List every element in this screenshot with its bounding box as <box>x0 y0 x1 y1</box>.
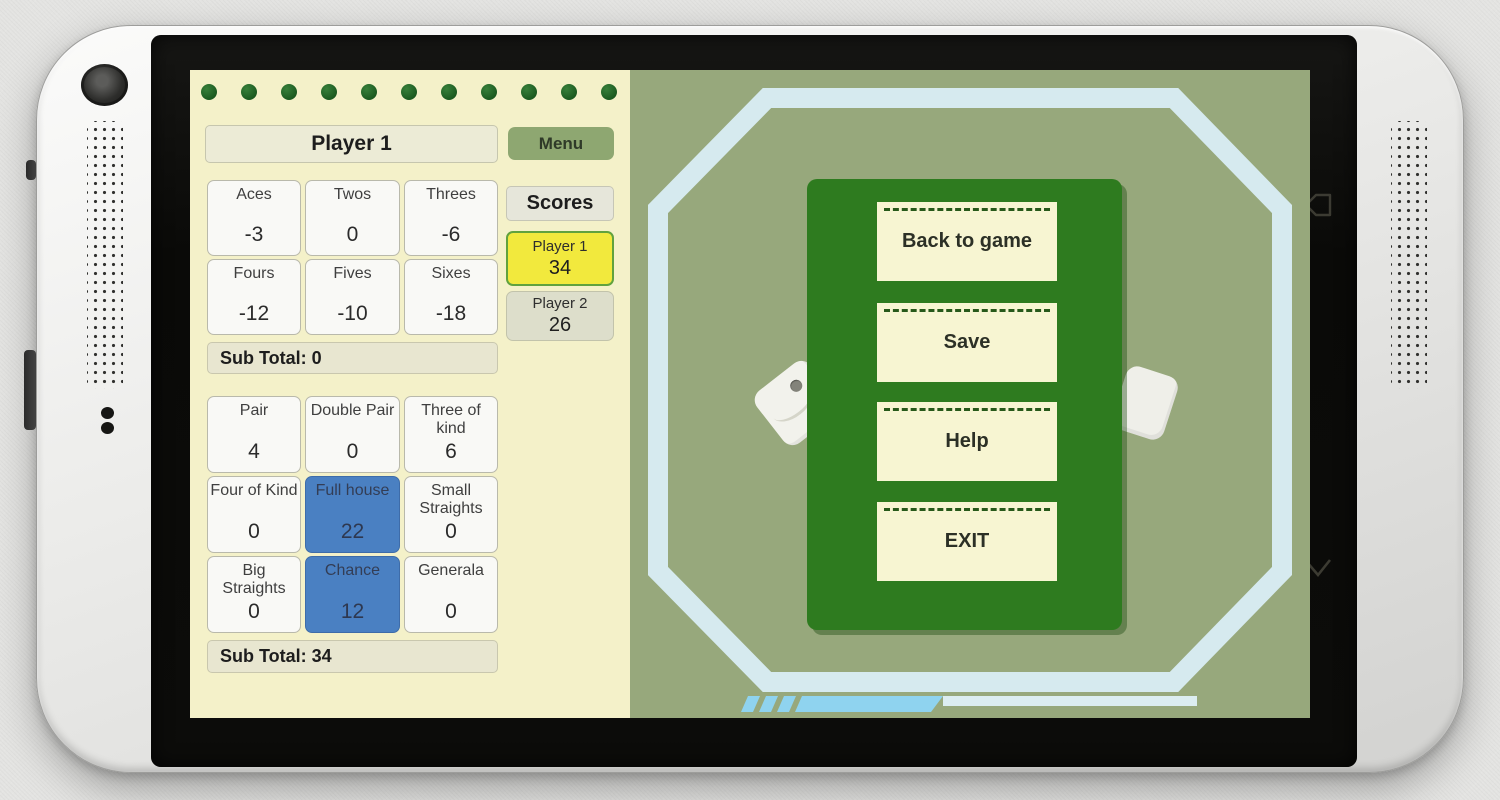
speaker-grille-left <box>87 121 123 389</box>
cell-value: -12 <box>239 302 269 326</box>
pause-button-label: Help <box>945 430 988 453</box>
decor-stripe <box>759 696 778 712</box>
cell-value: -3 <box>245 223 264 247</box>
cell-label: Chance <box>325 562 380 580</box>
stitch-line <box>884 508 1050 511</box>
sensor-dot <box>101 422 114 434</box>
cell-label: Threes <box>426 186 476 204</box>
cell-value: 0 <box>248 600 260 624</box>
volume-button <box>26 160 36 180</box>
save-button[interactable]: Save <box>877 303 1057 382</box>
cell-value: 0 <box>347 440 359 464</box>
binder-dot-icon <box>361 84 377 100</box>
cell-label: Small Straights <box>407 482 495 518</box>
subtotal-lower: Sub Total: 34 <box>207 640 498 673</box>
score-cell-chance[interactable]: Chance12 <box>305 556 400 633</box>
score-tab-name: Player 1 <box>532 238 587 255</box>
cell-value: -6 <box>442 223 461 247</box>
sensor-dot <box>101 407 114 419</box>
cell-value: 6 <box>445 440 457 464</box>
score-cell-fours[interactable]: Fours-12 <box>207 259 301 335</box>
camera-lens-icon <box>81 64 128 106</box>
cell-value: 4 <box>248 440 260 464</box>
score-tab-value: 34 <box>549 257 571 280</box>
score-cell-four-of-kind[interactable]: Four of Kind0 <box>207 476 301 553</box>
binder-dot-icon <box>481 84 497 100</box>
binder-dot-icon <box>241 84 257 100</box>
score-tabs: Player 134Player 226 <box>506 231 614 341</box>
cell-value: 12 <box>341 600 364 624</box>
binder-dots <box>201 84 617 100</box>
stitch-line <box>884 208 1050 211</box>
cell-label: Aces <box>236 186 272 204</box>
score-cell-three-of-kind[interactable]: Three of kind6 <box>404 396 498 473</box>
lower-score-grid: Pair4Double Pair0Three of kind6Four of K… <box>207 396 498 633</box>
decor-block <box>795 696 943 712</box>
scorecard-panel: Player 1 Menu Aces-3Twos0Threes-6Fours-1… <box>190 70 630 718</box>
cell-value: -10 <box>337 302 367 326</box>
decor-stripe <box>741 696 760 712</box>
score-tab-player-1[interactable]: Player 134 <box>506 231 614 286</box>
cell-label: Pair <box>240 402 268 420</box>
stitch-line <box>884 309 1050 312</box>
decor-stripe <box>777 696 796 712</box>
menu-button[interactable]: Menu <box>508 127 614 160</box>
score-cell-twos[interactable]: Twos0 <box>305 180 400 256</box>
cell-label: Sixes <box>431 265 470 283</box>
cell-label: Fives <box>333 265 371 283</box>
cell-label: Big Straights <box>210 562 298 598</box>
cell-label: Fours <box>234 265 275 283</box>
score-cell-double-pair[interactable]: Double Pair0 <box>305 396 400 473</box>
score-cell-full-house[interactable]: Full house22 <box>305 476 400 553</box>
player-name-header: Player 1 <box>205 125 498 163</box>
cell-value: -18 <box>436 302 466 326</box>
pause-button-label: Save <box>944 331 991 354</box>
cell-label: Generala <box>418 562 484 580</box>
table-shadow-band <box>943 696 1197 706</box>
score-cell-threes[interactable]: Threes-6 <box>404 180 498 256</box>
cell-value: 22 <box>341 520 364 544</box>
cell-label: Double Pair <box>311 402 395 420</box>
binder-dot-icon <box>601 84 617 100</box>
binder-dot-icon <box>201 84 217 100</box>
score-cell-big-straights[interactable]: Big Straights0 <box>207 556 301 633</box>
power-button <box>24 350 36 430</box>
score-cell-generala[interactable]: Generala0 <box>404 556 498 633</box>
binder-dot-icon <box>321 84 337 100</box>
cell-value: 0 <box>347 223 359 247</box>
game-table-area: Back to gameSaveHelpEXIT <box>630 70 1310 718</box>
score-cell-aces[interactable]: Aces-3 <box>207 180 301 256</box>
score-tab-name: Player 2 <box>532 295 587 312</box>
cell-label: Three of kind <box>407 402 495 438</box>
upper-score-grid: Aces-3Twos0Threes-6Fours-12Fives-10Sixes… <box>207 180 498 335</box>
score-tab-value: 26 <box>549 314 571 337</box>
cell-value: 0 <box>445 520 457 544</box>
pause-button-label: Back to game <box>902 230 1032 253</box>
cell-value: 0 <box>445 600 457 624</box>
stitch-line <box>884 408 1050 411</box>
pause-button-label: EXIT <box>945 530 989 553</box>
binder-dot-icon <box>281 84 297 100</box>
subtotal-upper: Sub Total: 0 <box>207 342 498 374</box>
score-cell-sixes[interactable]: Sixes-18 <box>404 259 498 335</box>
binder-dot-icon <box>521 84 537 100</box>
cell-label: Twos <box>334 186 371 204</box>
score-cell-fives[interactable]: Fives-10 <box>305 259 400 335</box>
cell-label: Four of Kind <box>210 482 297 500</box>
score-cell-small-straights[interactable]: Small Straights0 <box>404 476 498 553</box>
pause-menu-panel: Back to gameSaveHelpEXIT <box>807 179 1122 630</box>
speaker-grille-right <box>1391 121 1427 389</box>
cell-value: 0 <box>248 520 260 544</box>
binder-dot-icon <box>441 84 457 100</box>
binder-dot-icon <box>561 84 577 100</box>
back-to-game-button[interactable]: Back to game <box>877 202 1057 281</box>
scores-title: Scores <box>506 186 614 221</box>
help-button[interactable]: Help <box>877 402 1057 481</box>
cell-label: Full house <box>316 482 390 500</box>
score-cell-pair[interactable]: Pair4 <box>207 396 301 473</box>
exit-button[interactable]: EXIT <box>877 502 1057 581</box>
binder-dot-icon <box>401 84 417 100</box>
score-tab-player-2[interactable]: Player 226 <box>506 291 614 341</box>
